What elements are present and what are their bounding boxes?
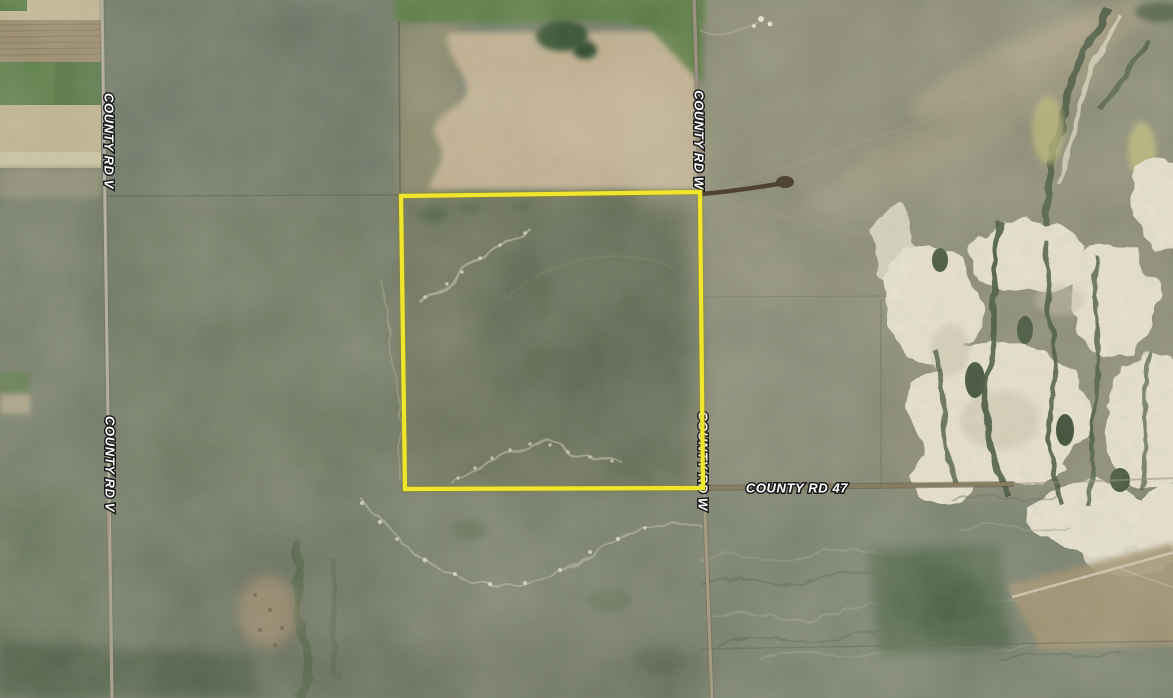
- ranch-track-end: [776, 176, 794, 188]
- road-label-county-rd-v-north: COUNTY RD V: [102, 93, 117, 190]
- road-label-county-rd-47: COUNTY RD 47: [746, 480, 848, 495]
- map-viewport[interactable]: COUNTY RD V COUNTY RD V COUNTY RD W COUN…: [0, 0, 1173, 698]
- satellite-imagery: COUNTY RD V COUNTY RD V COUNTY RD W COUN…: [0, 0, 1173, 698]
- road-label-county-rd-v-south: COUNTY RD V: [103, 416, 118, 513]
- terrain-fine-grain: [0, 0, 1173, 698]
- road-label-county-rd-w-north: COUNTY RD W: [692, 90, 707, 191]
